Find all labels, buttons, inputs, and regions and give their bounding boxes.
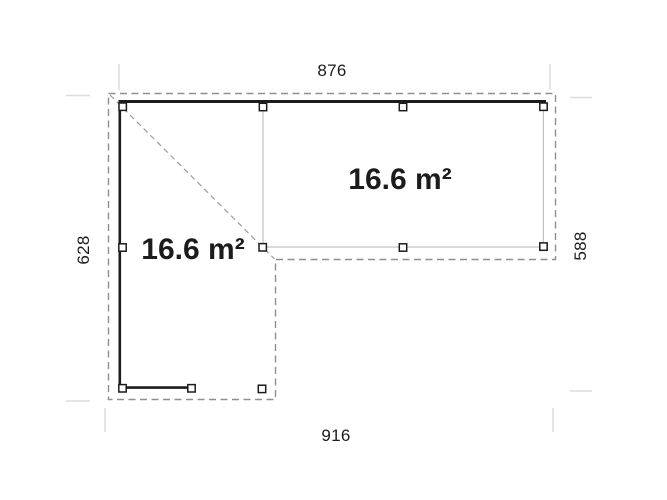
area-label-right-wing: 16.6 m²: [348, 163, 451, 197]
floor-plan-page: 876 916 628 588 16.6 m² 16.6 m²: [0, 0, 667, 500]
post-bottom-free: [258, 385, 265, 392]
post-bottom-left: [119, 385, 126, 392]
post-bottom-right: [540, 243, 547, 250]
post-top-mid-2: [399, 103, 406, 110]
area-label-left-wing: 16.6 m²: [141, 233, 244, 267]
post-left-mid: [119, 244, 126, 251]
dimension-top-label: 876: [317, 61, 346, 81]
post-inner-corner: [259, 244, 266, 251]
post-bottom-mid-right-wing: [399, 244, 406, 251]
dimension-bottom-label: 916: [321, 426, 350, 446]
post-bottom-wall-end: [188, 385, 195, 392]
dimension-right-label: 588: [571, 231, 591, 260]
post-top-right: [540, 103, 547, 110]
post-top-mid-1: [259, 103, 266, 110]
dimension-left-label: 628: [74, 235, 94, 264]
post-top-left: [119, 103, 126, 110]
